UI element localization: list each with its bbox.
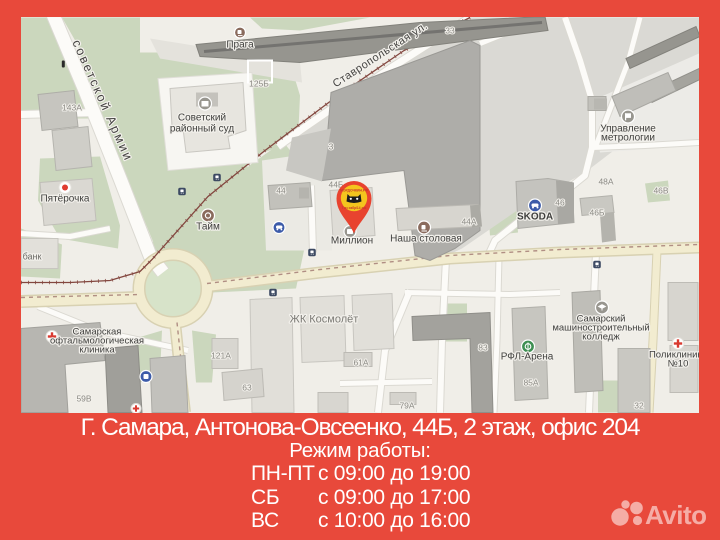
svg-text:Прага: Прага (226, 39, 254, 50)
svg-text:Тайм: Тайм (196, 221, 220, 232)
svg-text:РФЛ-Арена: РФЛ-Арена (501, 351, 554, 362)
svg-text:83: 83 (478, 342, 488, 352)
svg-text:районный суд: районный суд (170, 123, 235, 134)
svg-text:№10: №10 (668, 358, 689, 369)
svg-text:46: 46 (555, 197, 565, 207)
svg-text:121А: 121А (211, 350, 231, 360)
svg-text:125Б: 125Б (249, 78, 269, 88)
svg-text:44А: 44А (461, 216, 476, 226)
svg-text:143А: 143А (62, 102, 82, 112)
svg-text:3: 3 (329, 141, 334, 151)
svg-text:МОРДОЧКИН.РФ: МОРДОЧКИН.РФ (340, 188, 368, 192)
svg-text:33: 33 (445, 25, 455, 35)
svg-text:7 из избр/14 экс: 7 из избр/14 экс (342, 206, 367, 210)
svg-text:метрологии: метрологии (601, 132, 655, 143)
svg-text:85А: 85А (523, 377, 538, 387)
svg-text:46В: 46В (653, 185, 668, 195)
svg-text:44: 44 (276, 185, 286, 195)
svg-text:63: 63 (242, 382, 252, 392)
svg-text:Советский: Советский (178, 112, 226, 123)
svg-text:61А: 61А (353, 357, 368, 367)
svg-text:59В: 59В (76, 393, 91, 403)
svg-text:ЖК Космолёт: ЖК Космолёт (290, 313, 359, 325)
svg-text:клиника: клиника (79, 344, 115, 355)
svg-text:банк: банк (23, 251, 42, 261)
svg-text:SKODA: SKODA (517, 211, 553, 222)
svg-text:79А: 79А (399, 400, 414, 410)
svg-text:48А: 48А (598, 176, 613, 186)
svg-text:32: 32 (634, 400, 644, 410)
svg-text:Avito: Avito (645, 500, 707, 530)
svg-text:колледж: колледж (582, 331, 620, 342)
svg-text:Наша столовая: Наша столовая (390, 233, 462, 244)
svg-text:Миллион: Миллион (331, 235, 373, 246)
svg-text:Пятёрочка: Пятёрочка (40, 193, 89, 204)
svg-text:46Б: 46Б (589, 207, 604, 217)
